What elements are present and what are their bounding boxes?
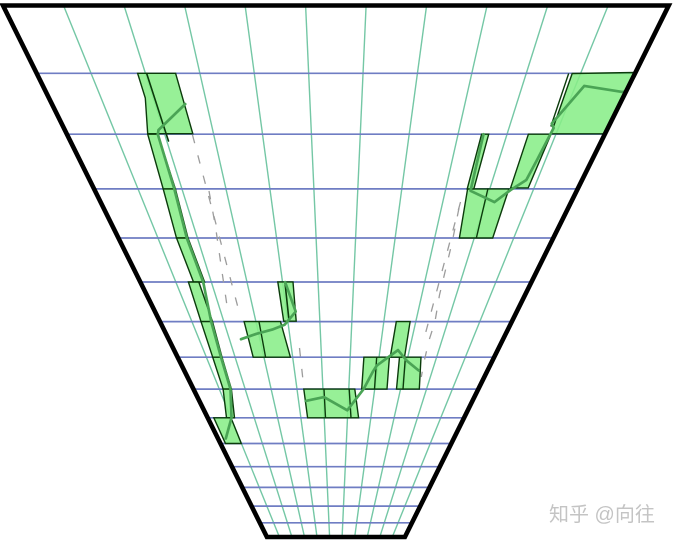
svg-text:知乎 @向往: 知乎 @向往 [549,503,655,526]
